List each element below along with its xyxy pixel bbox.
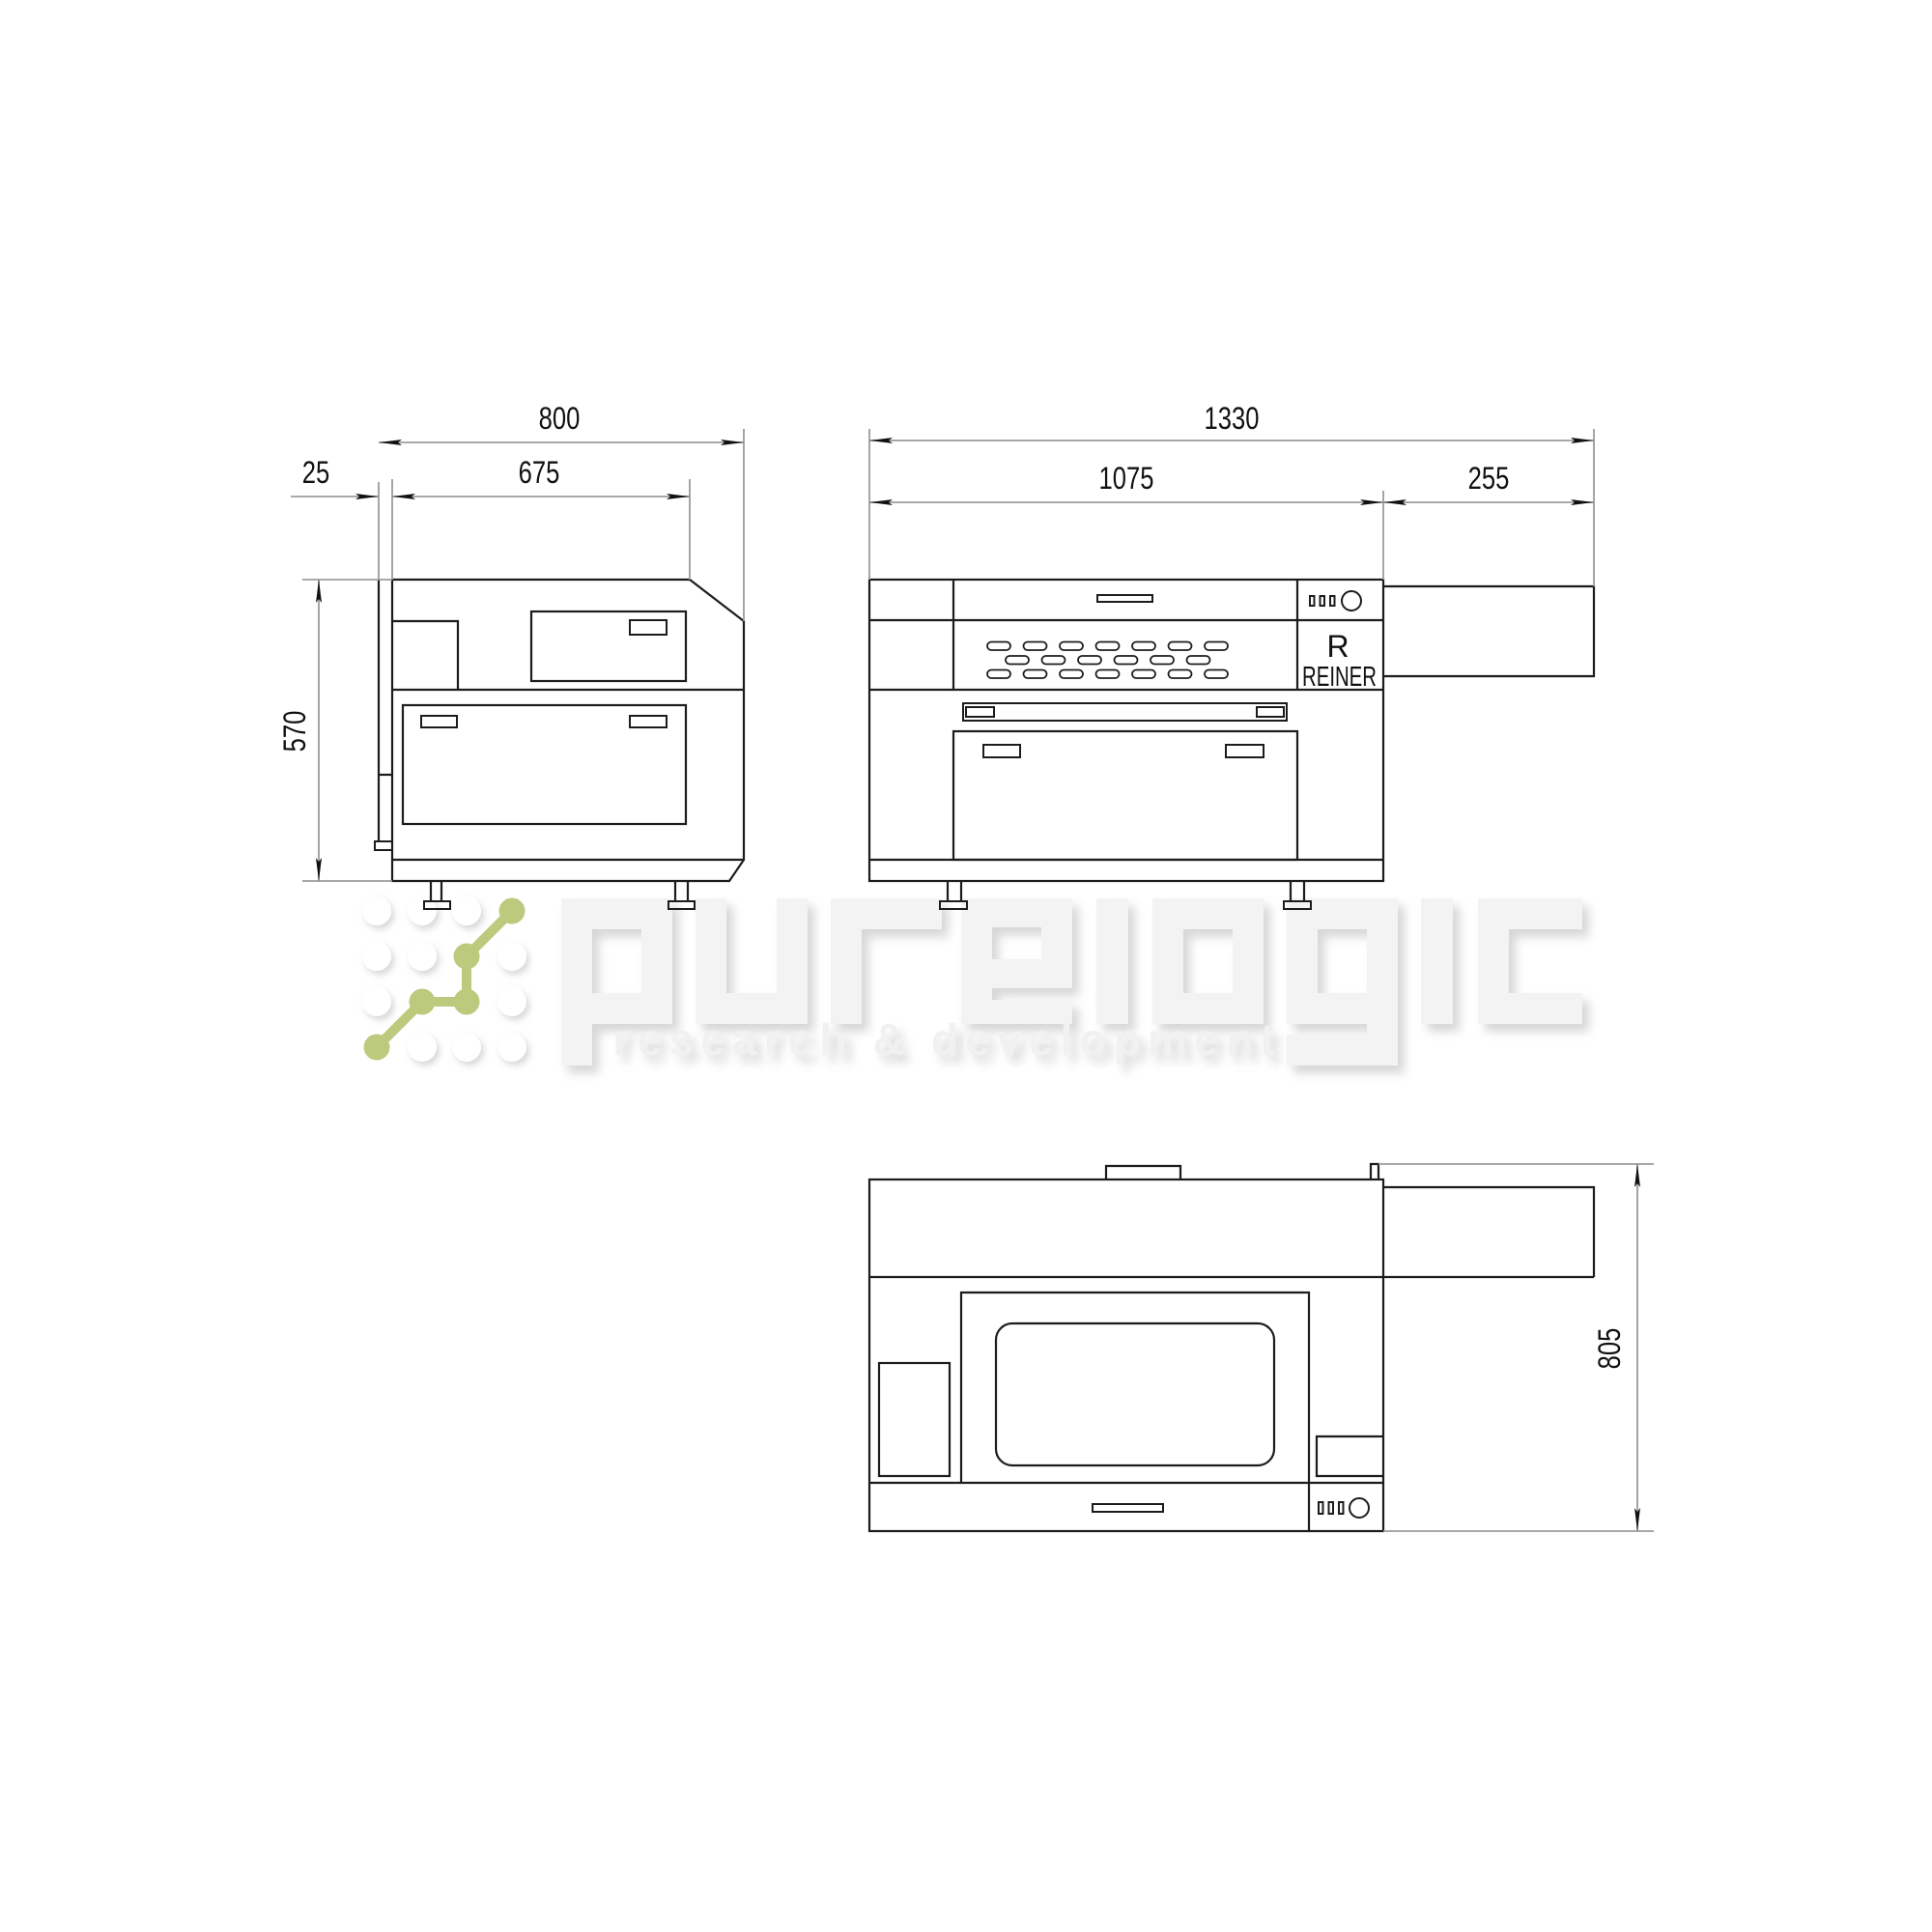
svg-text:research & development: research & development (613, 1014, 1275, 1065)
svg-text:800: 800 (539, 402, 581, 436)
svg-text:REINER: REINER (1302, 662, 1377, 693)
svg-text:1330: 1330 (1205, 402, 1260, 436)
svg-text:255: 255 (1468, 462, 1510, 496)
svg-text:570: 570 (278, 711, 312, 753)
svg-text:1075: 1075 (1099, 462, 1154, 496)
svg-text:R: R (1326, 629, 1349, 664)
svg-text:675: 675 (519, 456, 560, 490)
svg-text:805: 805 (1593, 1328, 1627, 1370)
svg-text:25: 25 (302, 456, 329, 490)
